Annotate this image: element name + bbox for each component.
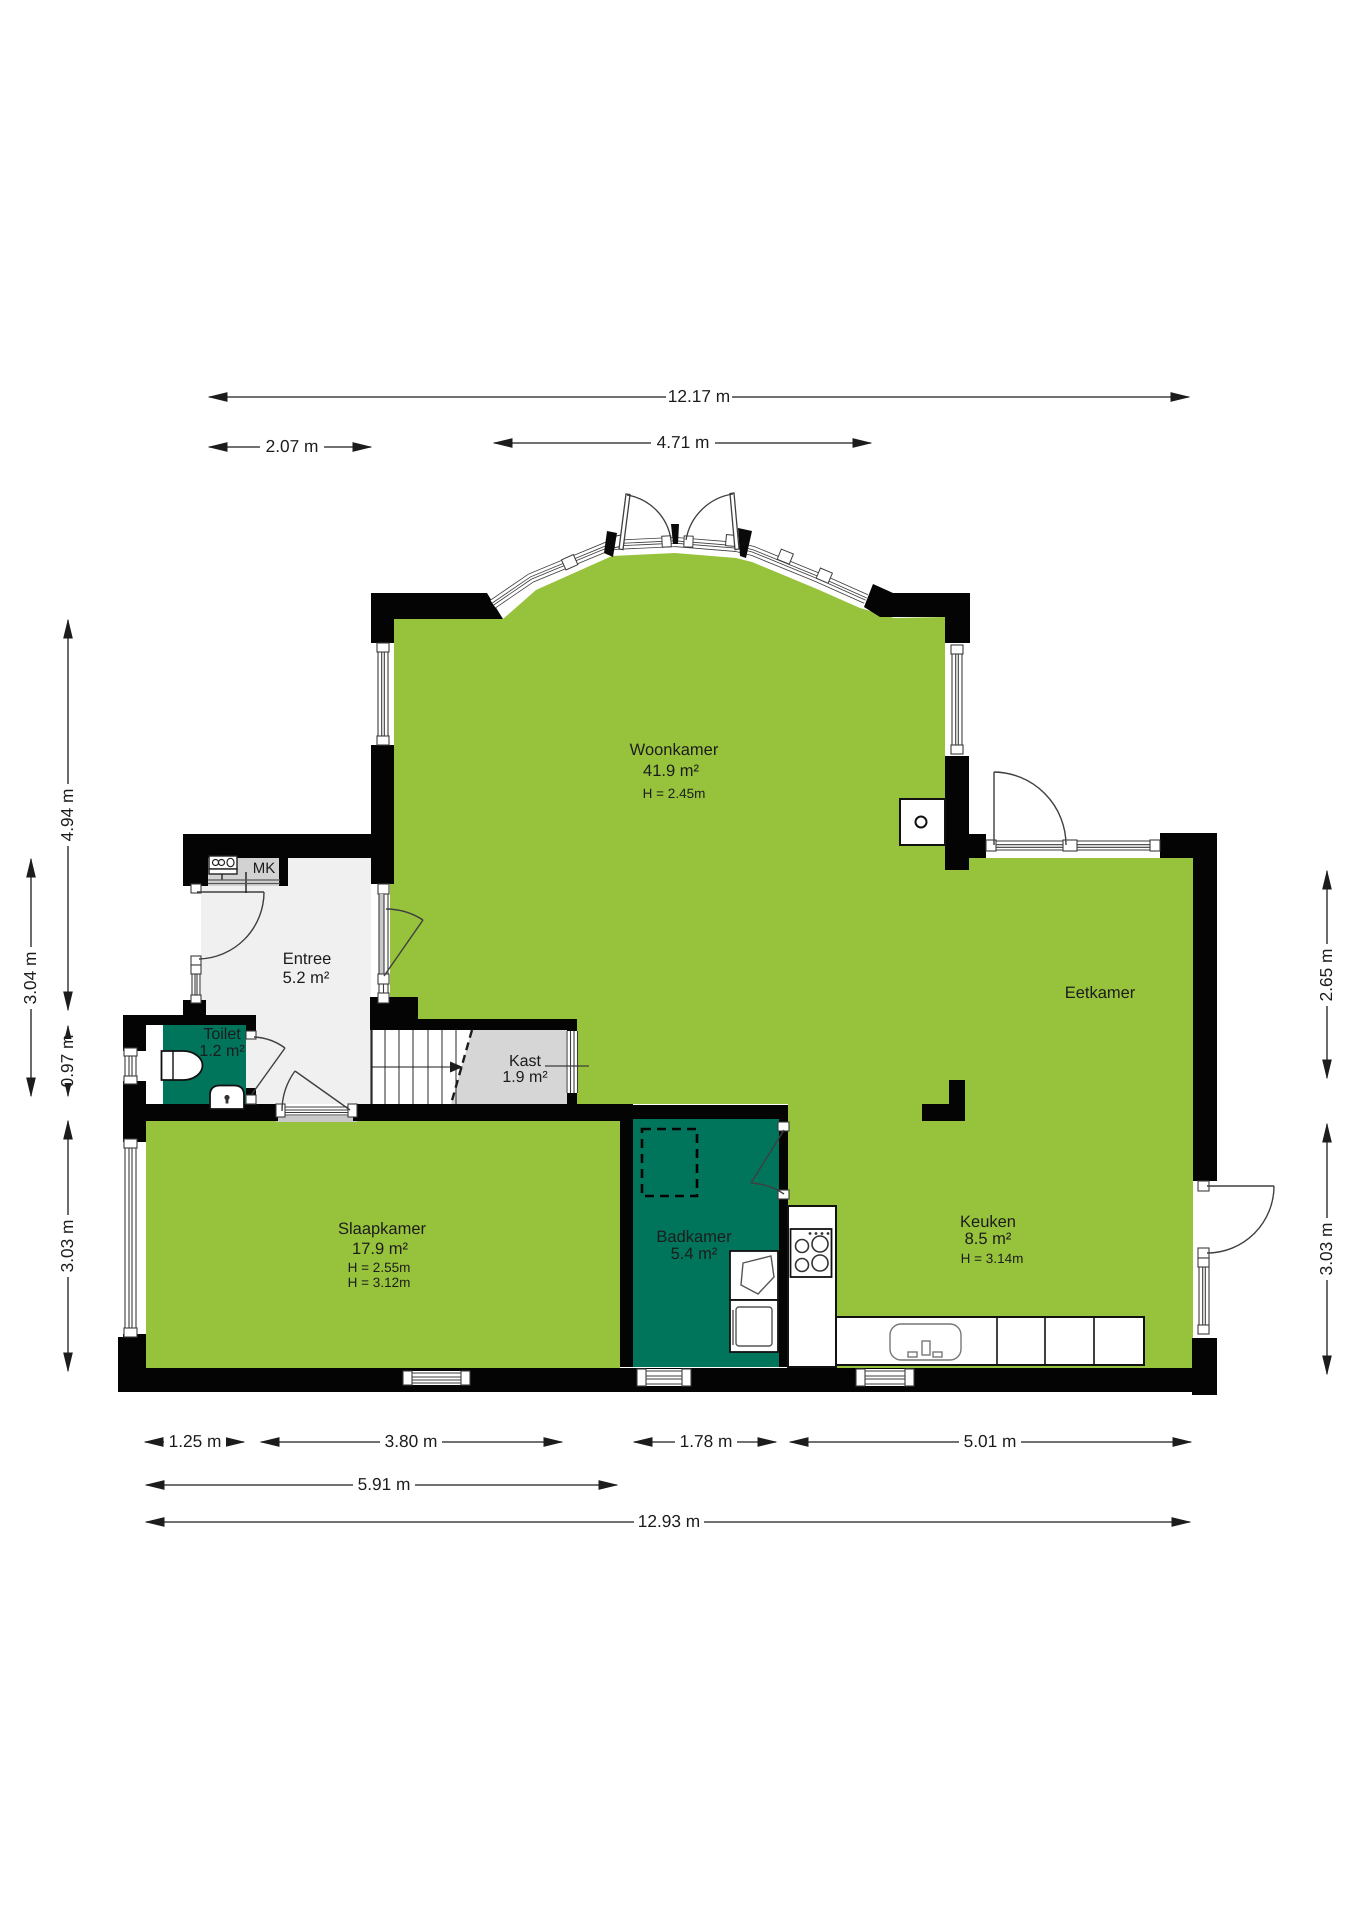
svg-text:5.01 m: 5.01 m	[964, 1431, 1017, 1451]
svg-text:Entree: Entree	[283, 950, 332, 968]
svg-text:17.9 m²: 17.9 m²	[352, 1240, 408, 1258]
svg-text:3.04 m: 3.04 m	[20, 952, 40, 1005]
svg-text:2.07 m: 2.07 m	[266, 436, 319, 456]
svg-text:1.2 m²: 1.2 m²	[199, 1043, 245, 1060]
svg-text:H = 3.12m: H = 3.12m	[348, 1275, 411, 1290]
svg-text:Badkamer: Badkamer	[656, 1228, 732, 1246]
svg-text:2.65 m: 2.65 m	[1316, 949, 1336, 1002]
svg-text:Toilet: Toilet	[203, 1026, 241, 1043]
svg-text:12.17 m: 12.17 m	[668, 386, 730, 406]
svg-text:5.91 m: 5.91 m	[358, 1474, 411, 1494]
svg-text:Slaapkamer: Slaapkamer	[338, 1220, 427, 1238]
svg-text:H = 2.55m: H = 2.55m	[348, 1260, 411, 1275]
svg-text:5.4 m²: 5.4 m²	[671, 1245, 718, 1263]
svg-text:Keuken: Keuken	[960, 1213, 1016, 1231]
svg-text:Kast: Kast	[509, 1053, 542, 1070]
svg-text:H = 3.14m: H = 3.14m	[961, 1251, 1024, 1266]
svg-text:1.9 m²: 1.9 m²	[502, 1069, 548, 1086]
svg-text:MK: MK	[253, 860, 276, 877]
svg-text:3.80 m: 3.80 m	[385, 1431, 438, 1451]
svg-text:3.03 m: 3.03 m	[1316, 1223, 1336, 1276]
svg-text:H = 2.45m: H = 2.45m	[643, 786, 706, 801]
svg-text:8.5 m²: 8.5 m²	[965, 1230, 1012, 1248]
svg-text:41.9 m²: 41.9 m²	[643, 762, 699, 780]
svg-text:1.78 m: 1.78 m	[680, 1431, 733, 1451]
svg-text:0.97 m: 0.97 m	[57, 1035, 77, 1088]
svg-text:3.03 m: 3.03 m	[57, 1220, 77, 1273]
svg-text:Eetkamer: Eetkamer	[1065, 984, 1136, 1002]
svg-text:4.71 m: 4.71 m	[657, 432, 710, 452]
svg-text:12.93 m: 12.93 m	[638, 1511, 700, 1531]
svg-text:4.94 m: 4.94 m	[57, 789, 77, 842]
svg-text:Woonkamer: Woonkamer	[630, 741, 719, 759]
svg-text:5.2 m²: 5.2 m²	[283, 969, 330, 987]
svg-text:1.25 m: 1.25 m	[169, 1431, 222, 1451]
